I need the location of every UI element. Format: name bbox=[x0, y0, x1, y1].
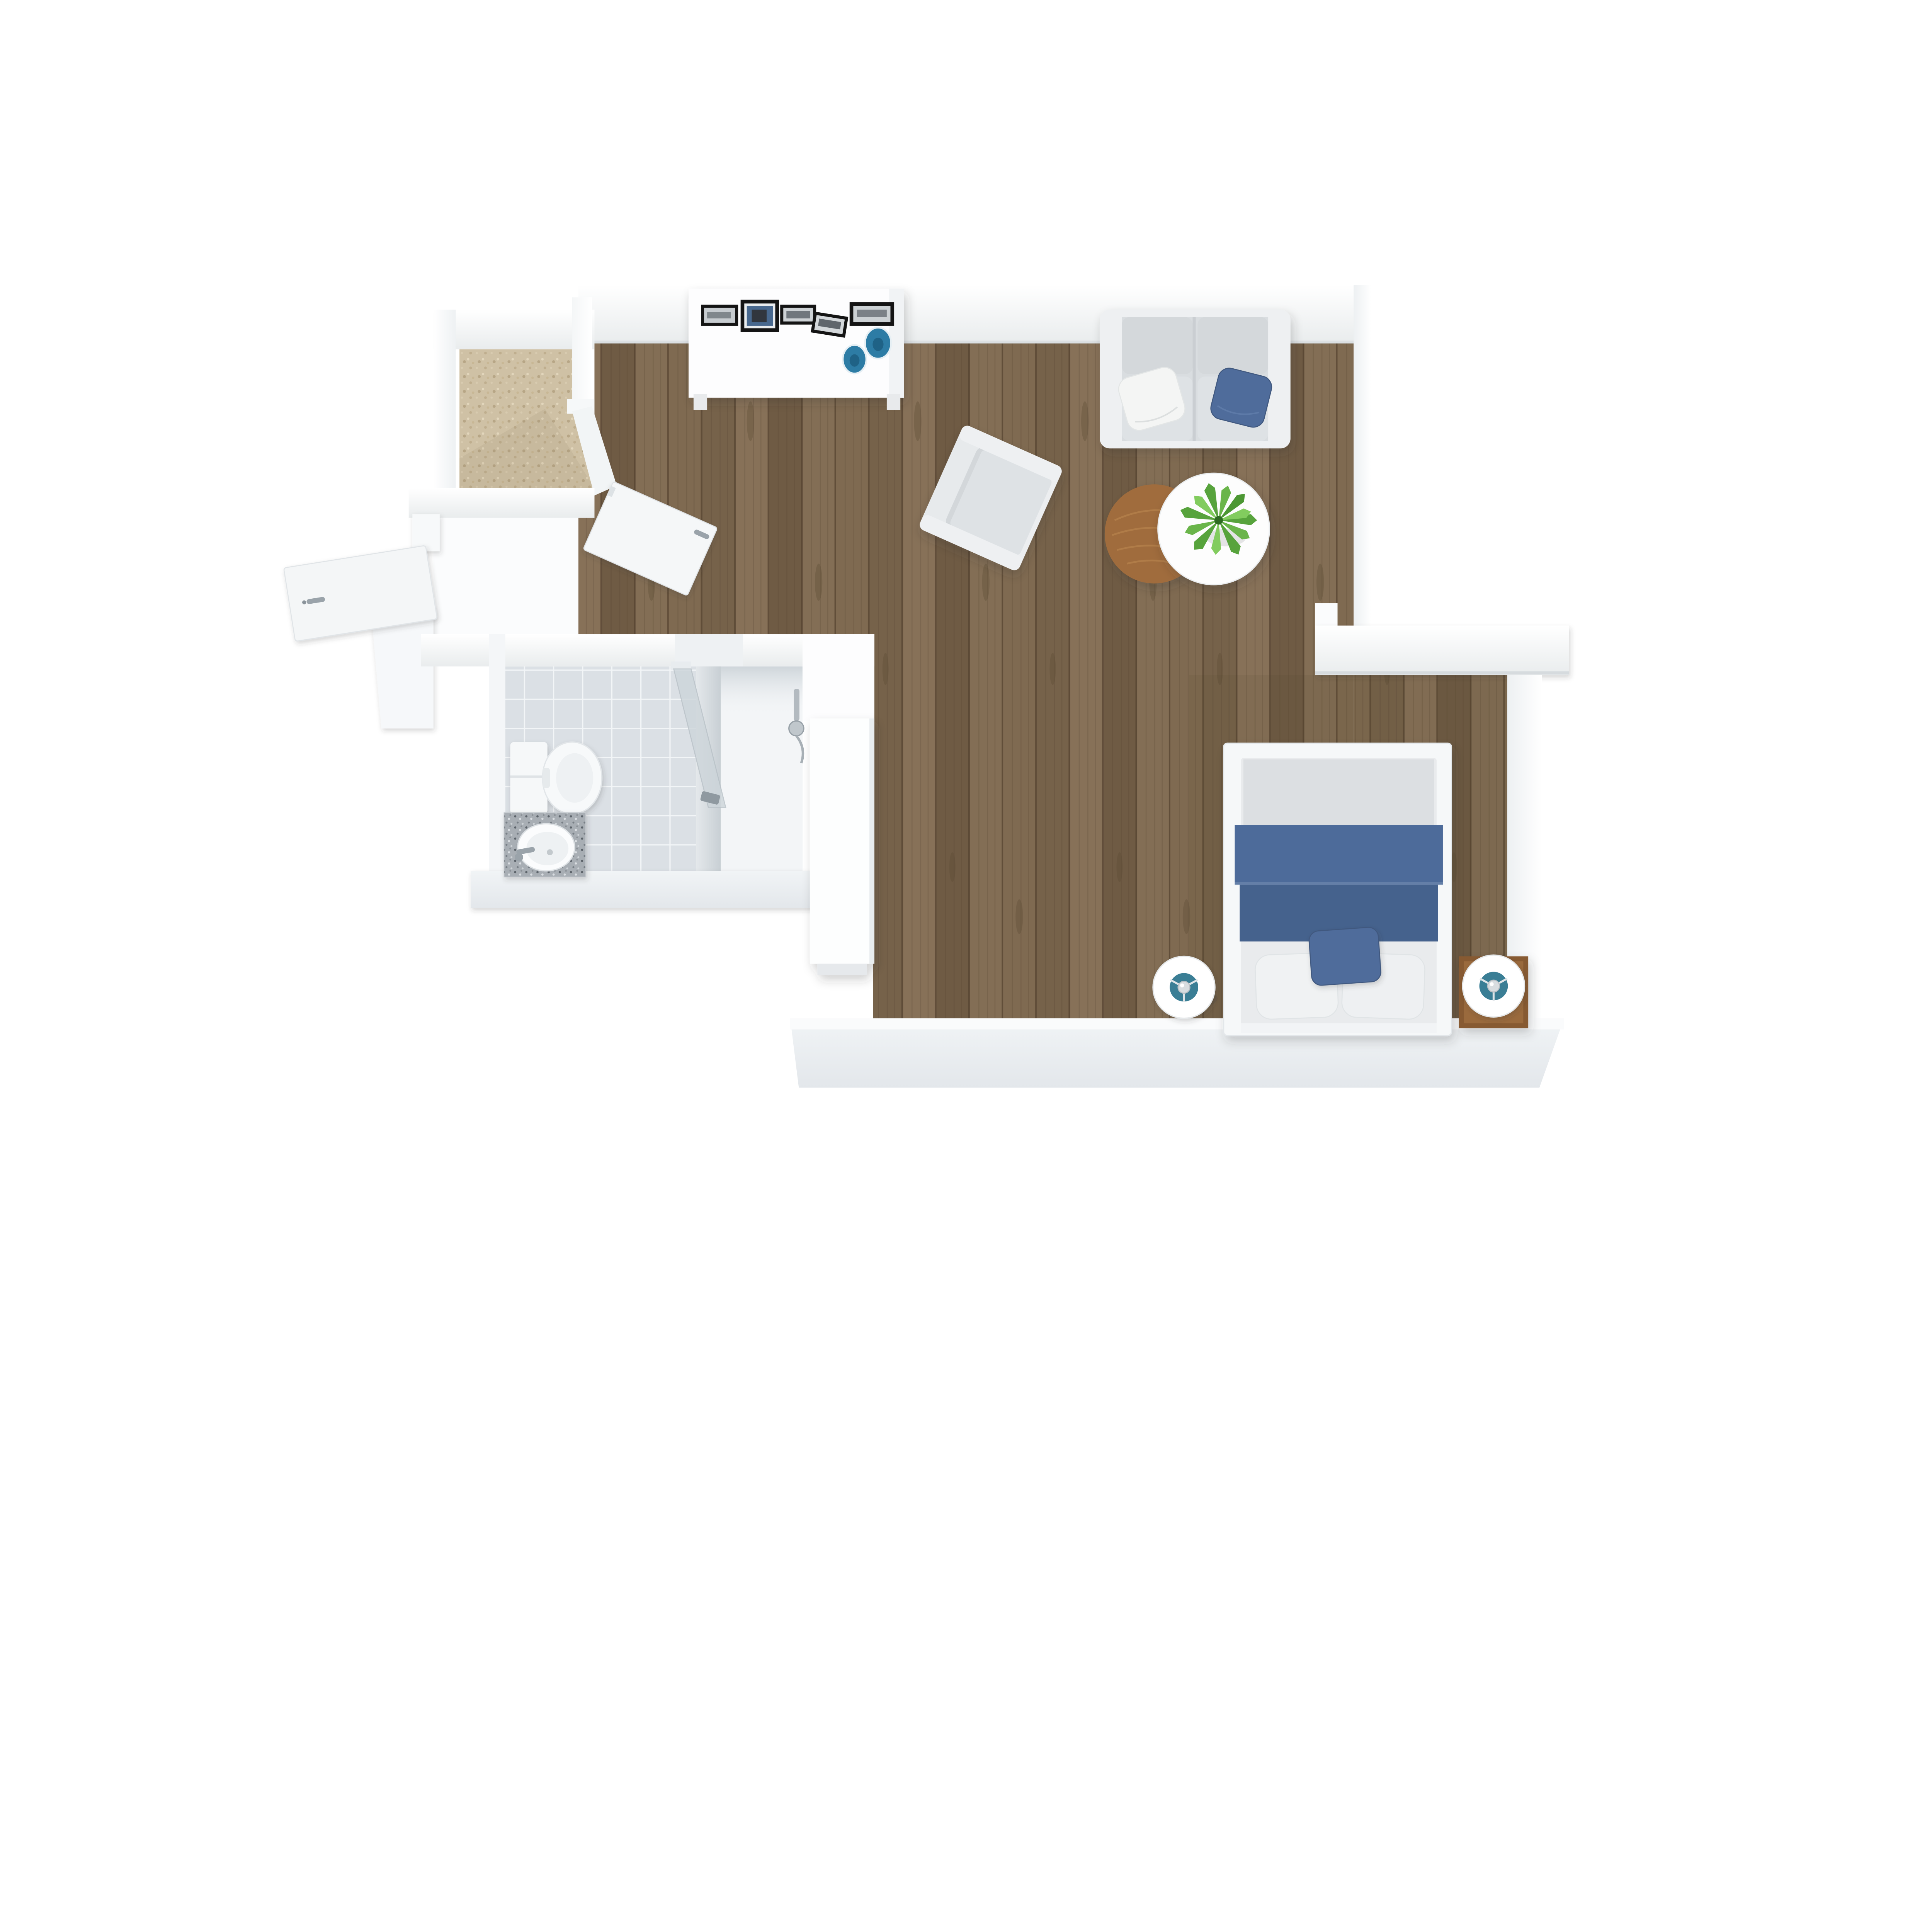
wardrobe-plinth bbox=[817, 964, 867, 975]
wall-living-east bbox=[1354, 285, 1371, 628]
wall-bedroom-north bbox=[1315, 626, 1569, 675]
wall-bathroom-west bbox=[489, 634, 505, 877]
picture-frame bbox=[850, 302, 894, 326]
bed-duvet-fold bbox=[1243, 759, 1434, 827]
toilet-hinge bbox=[543, 768, 550, 788]
floor-plan-stage bbox=[0, 0, 1932, 1365]
wardrobe bbox=[810, 718, 874, 975]
bed-blanket-fold-line bbox=[1235, 882, 1443, 885]
console-leg bbox=[887, 394, 900, 410]
toilet bbox=[510, 742, 602, 814]
wardrobe-body bbox=[810, 718, 874, 964]
sofa-back-cushion bbox=[1197, 317, 1268, 374]
wall-closet-west bbox=[434, 310, 456, 493]
sofa-back-cushion bbox=[1122, 317, 1193, 374]
sofa-cushion-gap bbox=[1193, 317, 1196, 441]
toilet-cistern-line bbox=[510, 775, 548, 778]
picture-frame bbox=[780, 305, 816, 324]
wall-bedroom-north-return bbox=[1315, 603, 1338, 628]
lamp-bulb-highlight bbox=[1490, 982, 1493, 986]
entry-threshold-floor bbox=[434, 518, 578, 638]
lamp-bulb-highlight bbox=[1180, 984, 1184, 987]
console-leg bbox=[694, 394, 707, 410]
wardrobe-edge bbox=[869, 718, 874, 964]
bed-foot-lip bbox=[1241, 1023, 1437, 1033]
sink-drain bbox=[547, 849, 553, 855]
blue-plate-center bbox=[872, 338, 883, 351]
wall-closet-east-shade bbox=[572, 297, 592, 411]
floor-plan-svg bbox=[0, 0, 1932, 1365]
sofa bbox=[1100, 310, 1291, 448]
picture-frame bbox=[741, 300, 779, 332]
media-console bbox=[689, 289, 904, 410]
shower-head-icon bbox=[789, 721, 804, 735]
bed bbox=[1224, 743, 1452, 1035]
picture-frame bbox=[701, 305, 738, 325]
wall-closet-north bbox=[434, 310, 595, 349]
toilet-seat-inner bbox=[556, 753, 593, 803]
vanity-sink bbox=[504, 813, 586, 877]
blue-plate-center bbox=[850, 354, 860, 367]
bed-pillow-blue bbox=[1308, 927, 1381, 986]
shower-riser-bar bbox=[794, 689, 799, 721]
wall-bedroom-north-edge bbox=[1315, 671, 1569, 674]
bed-blanket-upper bbox=[1235, 825, 1443, 885]
wall-closet-south bbox=[409, 488, 595, 518]
entry-door-frame bbox=[412, 514, 440, 551]
shower-wall-shadow bbox=[721, 666, 803, 716]
lamp-bulb-icon bbox=[1178, 981, 1190, 993]
bedside-lamp-right bbox=[1463, 955, 1524, 1017]
wall-shower-north bbox=[803, 634, 874, 721]
lamp-bulb-icon bbox=[1488, 980, 1500, 992]
